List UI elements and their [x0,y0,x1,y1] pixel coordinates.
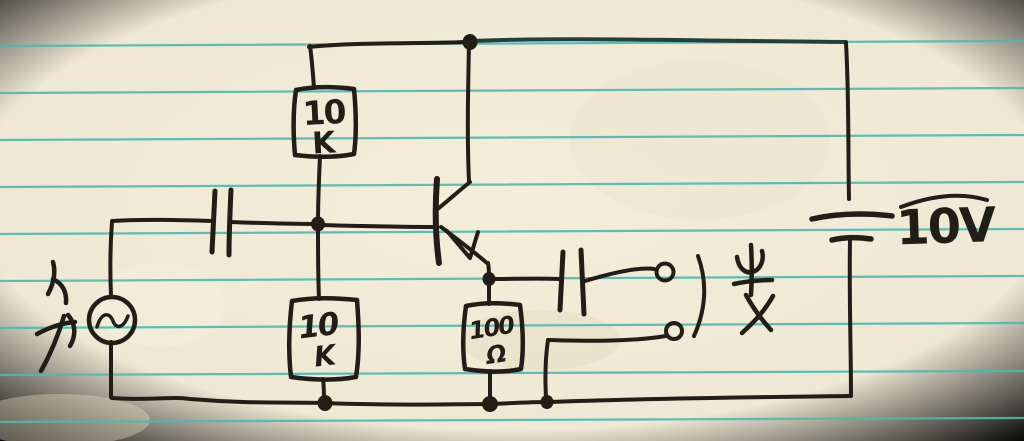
bottom-junction-dot-r2 [318,395,333,411]
notebook-page: 10 K 10 K 100 Ω 10V [0,0,1024,441]
bottom-junction-dot-output [541,395,554,409]
battery-plate-short [832,238,871,240]
bottom-junction-dot-re [482,396,498,412]
collector-wire [468,44,469,181]
r1-unit-label: K [311,125,338,161]
circuit-sketch: 10 K 10 K 100 Ω 10V [0,0,1024,441]
battery-voltage-label: 10V [895,197,997,256]
transistor-base-bar [436,179,439,263]
